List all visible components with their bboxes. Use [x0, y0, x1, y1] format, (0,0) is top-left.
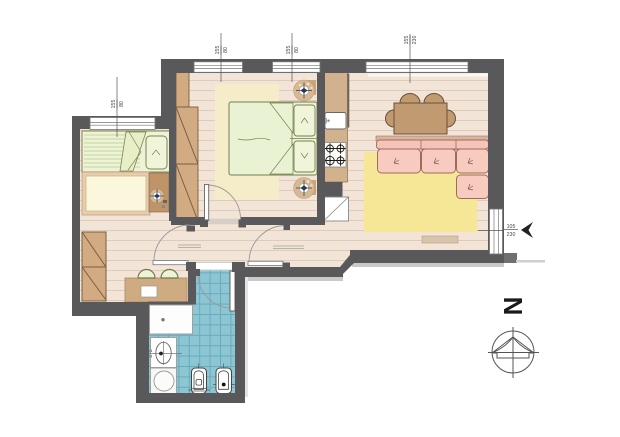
svg-text:155: 155: [404, 36, 410, 45]
svg-text:80: 80: [223, 47, 229, 53]
svg-text:155: 155: [111, 100, 117, 109]
svg-text:230: 230: [507, 232, 516, 238]
svg-text:80: 80: [119, 101, 125, 107]
svg-text:105: 105: [507, 224, 516, 230]
svg-text:155: 155: [215, 46, 221, 55]
svg-text:80: 80: [294, 47, 300, 53]
svg-text:230: 230: [412, 36, 418, 45]
svg-text:N: N: [498, 297, 528, 316]
svg-text:155: 155: [286, 46, 292, 55]
